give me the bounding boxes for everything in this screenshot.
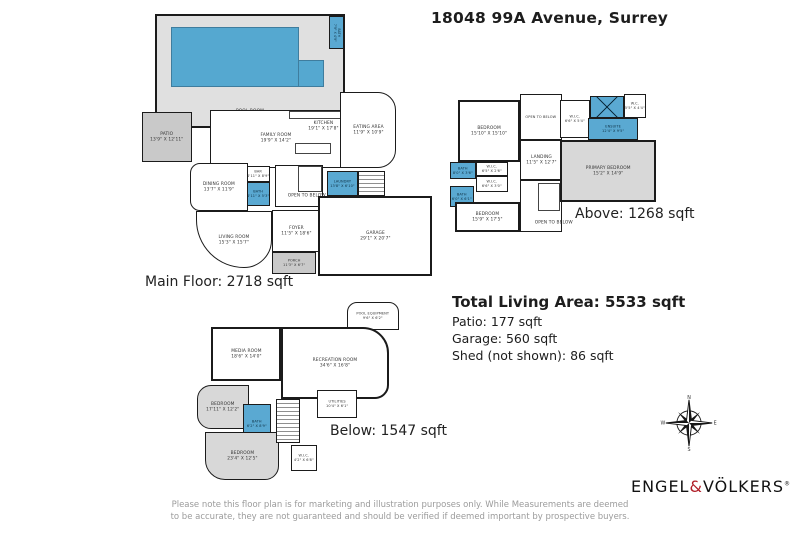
room-label: POOL EQUIPMENT 9'6" X 6'2" — [357, 312, 390, 321]
room-main-bath: BATH 4'11" X 5'3" — [247, 182, 270, 206]
room-label: BATH 7'9" X 4'9" — [333, 24, 341, 42]
room-label: KITCHEN 19'1" X 17'8" — [308, 120, 338, 131]
annotation-text: OPEN TO BELOW — [535, 220, 573, 225]
room-label: BATH 6'0" X 6'1" — [452, 192, 472, 201]
pool-step — [298, 60, 324, 87]
room-label: BATH 4'11" X 5'3" — [247, 190, 269, 199]
below-floor-area-label: Below: 1547 sqft — [330, 423, 447, 439]
disclaimer-text: Please note this floor plan is for marke… — [170, 500, 630, 524]
room-dims: 12'4" X 9'5" — [602, 129, 624, 133]
room-garage: GARAGE 29'1" X 20'7" — [318, 196, 432, 276]
room-name: BATH — [337, 24, 341, 42]
room-dims: 17'11" X 12'2" — [206, 407, 239, 412]
room-bar: BAR 4'11" X 8'9" — [247, 166, 270, 182]
room-dims: 6'6" X 5'4" — [565, 119, 585, 123]
room-dims: 10'4" X 6'1" — [326, 404, 348, 408]
room-bedroom-below-1: BEDROOM 17'11" X 12'2" — [197, 385, 249, 429]
garage-area: Garage: 560 sqft — [452, 331, 685, 346]
room-foyer: FOYER 11'5" X 18'6" — [272, 210, 320, 252]
room-label: MEDIA ROOM 18'6" X 14'0" — [231, 349, 261, 360]
open-to-below-label: OPEN TO BELOW — [526, 115, 557, 119]
room-dims: 13'9" X 12'11" — [150, 137, 183, 142]
registered-mark: ® — [784, 481, 790, 488]
room-media-room: MEDIA ROOM 18'6" X 14'0" — [211, 327, 281, 381]
room-label: BATH 6'2" X 8'9" — [247, 420, 267, 429]
room-name: LIVING ROOM — [219, 234, 250, 239]
open-to-below-upper-1: OPEN TO BELOW — [520, 94, 562, 140]
room-dims: 15'10" X 15'10" — [471, 131, 507, 136]
patio-area: Patio: 177 sqft — [452, 314, 685, 329]
room-porch: PORCH 11'3" X 6'7" — [272, 252, 316, 274]
area-summary: Total Living Area: 5533 sqft Patio: 177 … — [452, 293, 685, 363]
room-label: W.C. 5'5" X 4'4" — [625, 102, 645, 111]
room-label: EATING AREA 11'9" X 10'9" — [353, 125, 383, 136]
shower-room — [590, 96, 624, 118]
room-label: UTILITIES 10'4" X 6'1" — [326, 400, 348, 409]
room-dims: 4'11" X 8'9" — [247, 174, 269, 178]
upper-stairwell: OPEN TO BELOW — [520, 180, 562, 232]
compass-s-label: S — [687, 447, 690, 452]
room-bedroom-above-1: BEDROOM 15'10" X 15'10" — [458, 100, 520, 162]
room-bath-above-a: BATH 8'0" X 3'6" — [450, 162, 476, 179]
brand-logo: ENGEL&VÖLKERS® — [612, 477, 790, 496]
room-dims: 6'6" X 3'0" — [482, 184, 502, 188]
room-label: LANDING 11'5" X 12'7" — [526, 155, 556, 166]
room-label: ENSUITE 12'4" X 9'5" — [602, 125, 624, 134]
room-dims: 34'6" X 16'8" — [313, 363, 358, 368]
brand-part1: ENGEL — [631, 477, 690, 496]
room-dims: 7'9" X 4'9" — [333, 24, 337, 42]
room-label: BEDROOM 23'4" X 12'5" — [227, 451, 257, 462]
room-living-room: LIVING ROOM 15'3" X 15'7" — [196, 211, 272, 268]
main-floor-area-label: Main Floor: 2718 sqft — [145, 274, 293, 290]
total-living-area: Total Living Area: 5533 sqft — [452, 293, 685, 311]
room-dims: 13'8" X 6'10" — [330, 184, 354, 188]
room-dims: 29'1" X 20'7" — [360, 236, 390, 241]
kitchen-counter — [289, 111, 345, 119]
main-stairwell: OPEN TO BELOW — [275, 165, 323, 207]
compass-e-label: E — [714, 421, 717, 427]
room-label: W.I.C. 6'6" X 3'0" — [482, 180, 502, 189]
room-pool-equipment: POOL EQUIPMENT 9'6" X 6'2" — [347, 302, 399, 330]
room-label: FOYER 11'5" X 18'6" — [281, 226, 311, 237]
room-wic-c: W.I.C. 6'6" X 5'4" — [560, 100, 590, 138]
room-dims: 15'2" X 14'9" — [586, 171, 631, 176]
shower-icon — [591, 97, 623, 117]
laundry-stairs — [358, 171, 385, 196]
room-patio: PATIO 13'9" X 12'11" — [142, 112, 192, 162]
lower-stairs — [276, 399, 300, 443]
compass-rose-icon: N E S W — [660, 394, 718, 452]
room-bedroom-above-2: BEDROOM 15'9" X 17'5" — [455, 202, 520, 232]
floorplan-sheet: 18048 99A Avenue, Surrey POOL ROOM 46'11… — [0, 0, 800, 533]
page-title: 18048 99A Avenue, Surrey — [431, 9, 668, 27]
room-landing: LANDING 11'5" X 12'7" — [520, 140, 562, 180]
room-primary-bedroom: PRIMARY BEDROOM 15'2" X 14'9" — [560, 140, 656, 202]
above-floor-area-label: Above: 1268 sqft — [575, 206, 695, 222]
pool — [171, 27, 299, 87]
shed-area: Shed (not shown): 86 sqft — [452, 348, 685, 363]
room-dims: 6'2" X 8'9" — [247, 424, 267, 428]
brand-part2: VÖLKERS — [703, 477, 784, 496]
kitchen-island — [295, 143, 331, 154]
compass-w-label: W — [661, 421, 666, 427]
room-dims: 18'6" X 14'0" — [231, 354, 261, 359]
stairs — [538, 183, 560, 211]
room-label: BEDROOM 17'11" X 12'2" — [206, 402, 239, 413]
room-dims: 9'6" X 6'2" — [357, 316, 390, 320]
room-label: BATH 8'0" X 3'6" — [453, 166, 473, 175]
room-laundry: LAUNDRY 13'8" X 6'10" — [327, 171, 358, 196]
room-dims: 19'1" X 17'8" — [308, 126, 338, 131]
room-label: BEDROOM 15'10" X 15'10" — [471, 126, 507, 137]
room-family-kitchen-openspace: FAMILY ROOM 19'9" X 14'2" KITCHEN 19'1" … — [210, 110, 345, 168]
room-dims: 11'9" X 10'9" — [353, 130, 383, 135]
compass-n-label: N — [687, 395, 691, 401]
annotation-text: OPEN TO BELOW — [526, 115, 557, 119]
room-label: LIVING ROOM 15'3" X 15'7" — [219, 234, 250, 245]
room-label: LAUNDRY 13'8" X 6'10" — [330, 179, 354, 188]
room-wic-b: W.I.C. 6'6" X 3'0" — [476, 176, 508, 192]
room-wic-below: W.I.C. 4'2" X 6'8" — [291, 445, 317, 471]
room-eating-area: EATING AREA 11'9" X 10'9" — [340, 92, 396, 168]
room-dining-room: DINING ROOM 13'7" X 11'9" — [190, 163, 248, 211]
brand-ampersand: & — [689, 477, 702, 496]
room-label: RECREATION ROOM 34'6" X 16'8" — [313, 358, 358, 369]
room-wc: W.C. 5'5" X 4'4" — [624, 94, 646, 118]
room-dims: 4'2" X 6'8" — [294, 458, 314, 462]
room-dims: 11'5" X 12'7" — [526, 160, 556, 165]
room-utilities: UTILITIES 10'4" X 6'1" — [317, 390, 357, 418]
room-dims: 15'9" X 17'5" — [472, 217, 502, 222]
room-wic-a: W.I.C. 6'5" X 2'6" — [476, 162, 508, 176]
room-dims: 15'3" X 15'7" — [219, 240, 250, 245]
room-label: PORCH 11'3" X 6'7" — [283, 259, 305, 268]
room-name: LAUNDRY — [330, 179, 354, 183]
open-to-below-label: OPEN TO BELOW — [535, 220, 573, 225]
room-pool-bath: BATH 7'9" X 4'9" — [329, 16, 344, 49]
room-dims: 6'0" X 6'1" — [452, 197, 472, 201]
room-ensuite: ENSUITE 12'4" X 9'5" — [588, 118, 638, 140]
room-label: W.I.C. 4'2" X 6'8" — [294, 454, 314, 463]
room-dims: 11'5" X 18'6" — [281, 231, 311, 236]
room-dims: 5'5" X 4'4" — [625, 106, 645, 110]
room-label: BAR 4'11" X 8'9" — [247, 170, 269, 179]
room-dims: 19'9" X 14'2" — [260, 138, 291, 143]
stairs — [298, 166, 322, 192]
room-label: PRIMARY BEDROOM 15'2" X 14'9" — [586, 166, 631, 177]
room-dims: 8'0" X 3'6" — [453, 171, 473, 175]
room-dims: 13'7" X 11'9" — [203, 187, 235, 192]
room-bedroom-below-2: BEDROOM 23'4" X 12'5" — [205, 432, 279, 480]
room-label: GARAGE 29'1" X 20'7" — [360, 231, 390, 242]
room-label: BEDROOM 15'9" X 17'5" — [472, 212, 502, 223]
room-dims: 4'11" X 5'3" — [247, 194, 269, 198]
room-recreation-room: RECREATION ROOM 34'6" X 16'8" — [281, 327, 389, 399]
room-dims: 6'5" X 2'6" — [482, 169, 502, 173]
room-label: W.I.C. 6'6" X 5'4" — [565, 115, 585, 124]
room-dims: 11'3" X 6'7" — [283, 263, 305, 267]
room-label: W.I.C. 6'5" X 2'6" — [482, 165, 502, 174]
room-label: FAMILY ROOM 19'9" X 14'2" — [260, 132, 291, 143]
room-label: PATIO 13'9" X 12'11" — [150, 132, 183, 143]
room-label: DINING ROOM 13'7" X 11'9" — [203, 182, 235, 193]
room-dims: 23'4" X 12'5" — [227, 456, 257, 461]
